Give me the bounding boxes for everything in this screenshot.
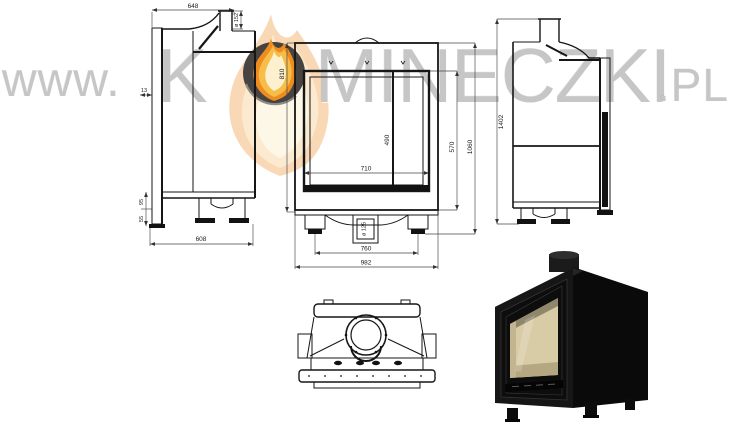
dim-side-left-width-top: 648 (188, 3, 199, 10)
front-view-drawing: 810 710 490 570 1060 ø 125 760 982 (279, 12, 484, 270)
dim-front-air-inlet: ø 125 (362, 222, 368, 236)
technical-drawing-page: www. K MINECZKI .PL 648 13 ø 152 (0, 0, 750, 422)
side-view-left-drawing: 648 13 ø 152 95 55 608 (133, 2, 268, 254)
fireplace-side-panel (573, 267, 648, 408)
dim-side-left-offset: 13 (141, 88, 147, 94)
dim-side-left-base-upper: 95 (139, 199, 145, 205)
dim-front-firebox-height: 570 (449, 141, 456, 152)
watermark-url-prefix: www. (2, 57, 121, 105)
product-photo (485, 250, 655, 422)
dim-side-left-depth: 608 (196, 236, 207, 243)
side-view-right-drawing: 1402 (483, 12, 623, 244)
dim-side-left-base-lower: 55 (139, 216, 145, 222)
dim-front-height: 810 (279, 68, 286, 79)
dim-front-overall-width: 982 (361, 260, 372, 267)
dim-front-feet-span: 760 (361, 246, 372, 253)
watermark-domain-suffix: .PL (657, 62, 729, 108)
top-view-drawing (294, 294, 444, 406)
dim-front-glass-height: 490 (384, 134, 391, 145)
dim-side-right-overall-height: 1402 (498, 114, 505, 129)
dim-front-glass-width: 710 (361, 166, 372, 173)
dim-side-left-flue: ø 152 (234, 13, 240, 27)
dim-front-overall-height: 1060 (467, 139, 474, 154)
